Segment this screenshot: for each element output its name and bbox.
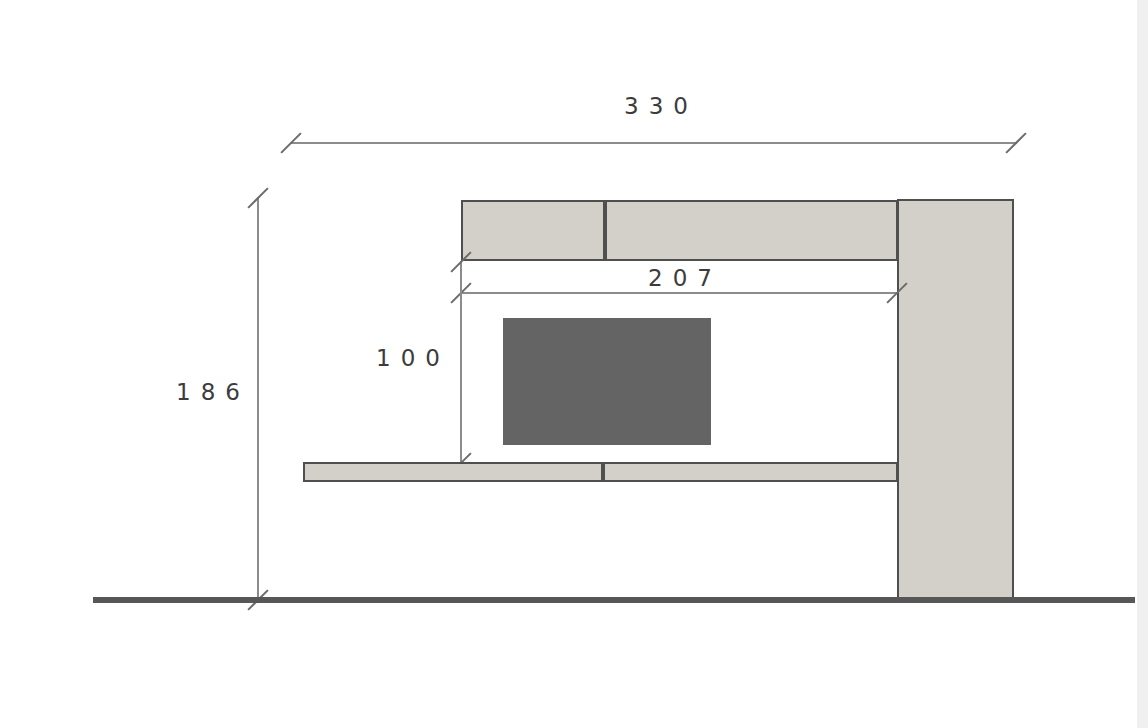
dimension-line-overall-height [257, 197, 259, 601]
dimension-line-inner-width [461, 292, 897, 294]
furniture-elevation-drawing: 330 186 207 100 [0, 0, 1148, 728]
tv-panel [503, 318, 711, 445]
upper-cabinet-divider [603, 202, 607, 259]
floor-line [93, 597, 1135, 603]
lower-shelf [303, 462, 898, 482]
dimension-line-overall-width [290, 142, 1017, 144]
tall-side-cabinet [897, 199, 1014, 599]
dimension-label-inner-width: 207 [610, 265, 760, 291]
upper-wall-cabinet [461, 200, 898, 261]
dimension-label-inner-height: 100 [376, 345, 448, 371]
dimension-label-overall-height: 186 [176, 379, 248, 405]
lower-shelf-divider [601, 464, 605, 480]
dimension-label-overall-width: 330 [580, 93, 742, 119]
right-edge-scrollbar[interactable] [1137, 0, 1148, 728]
dimension-line-inner-height [460, 261, 462, 463]
